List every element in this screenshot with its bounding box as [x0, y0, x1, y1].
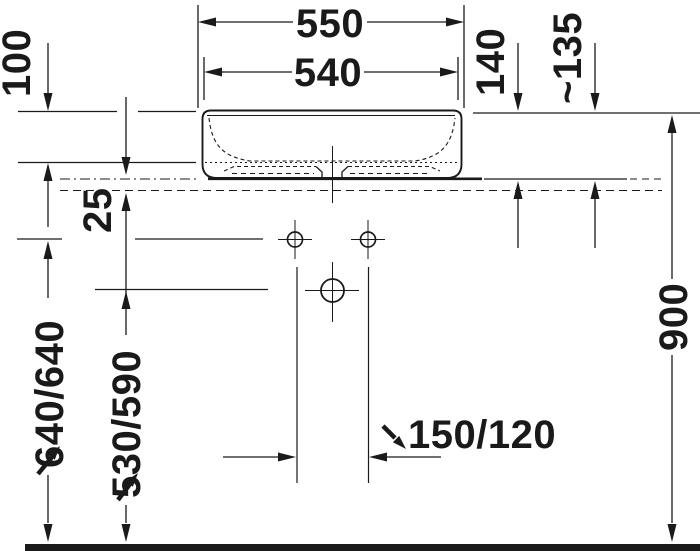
- dimension-label-550: 550: [296, 2, 364, 46]
- arrowhead-left-icon: [198, 18, 216, 27]
- arrowhead-down-icon: [591, 93, 600, 111]
- dimension-drain-height: 530/590: [95, 290, 268, 543]
- dimension-inner-width: 540: [204, 51, 458, 100]
- dimension-label-100: 100: [0, 29, 39, 97]
- arrowhead-left-icon: [369, 453, 387, 462]
- arrowhead-up-icon: [122, 291, 131, 309]
- arrowhead-down-icon: [44, 524, 53, 542]
- dimension-label-640-640: 640/640: [28, 320, 72, 468]
- arrowhead-up-icon: [44, 241, 53, 259]
- console-plate: [60, 179, 662, 191]
- dimension-approx-height: ~135: [546, 12, 600, 248]
- arrowhead-down-icon: [44, 93, 53, 111]
- tap-holes: [278, 220, 385, 259]
- dimension-tap-hole-distance: 150/120: [223, 267, 556, 483]
- floor-line: [25, 544, 700, 551]
- dimension-console-thickness: 25: [76, 97, 131, 335]
- arrowhead-right-icon: [446, 18, 464, 27]
- arrowhead-right-icon: [278, 453, 296, 462]
- basin-front-view: [203, 111, 483, 204]
- arrowhead-up-icon: [44, 163, 53, 181]
- dimension-label-140: 140: [469, 28, 513, 96]
- dimension-label-530-590: 530/590: [105, 350, 149, 498]
- arrowhead-up-icon: [668, 115, 677, 133]
- dimension-label-150-120: 150/120: [408, 413, 556, 457]
- drain-crosshair: [305, 262, 359, 322]
- tap-hole-left-crosshair: [278, 220, 312, 259]
- tap-hole-right-crosshair: [351, 220, 385, 259]
- arrowhead-down-icon: [668, 524, 677, 542]
- arrowhead-down-icon: [122, 157, 131, 175]
- dimension-label-135: ~135: [546, 12, 590, 104]
- technical-drawing-canvas: 550 540 100: [0, 0, 700, 551]
- drain-hole: [305, 262, 359, 322]
- arrowhead-left-icon: [204, 68, 222, 77]
- dimension-label-900: 900: [652, 283, 696, 351]
- dimension-label-25: 25: [76, 188, 120, 234]
- arrowhead-down-icon: [122, 524, 131, 542]
- arrowhead-right-icon: [440, 68, 458, 77]
- arrowhead-down-icon: [514, 93, 523, 111]
- arrowhead-up-icon: [122, 193, 131, 211]
- dimension-label-540: 540: [294, 51, 362, 95]
- reference-arrow-shaft: [383, 426, 395, 438]
- washbasin-dimension-drawing: 550 540 100: [0, 0, 700, 551]
